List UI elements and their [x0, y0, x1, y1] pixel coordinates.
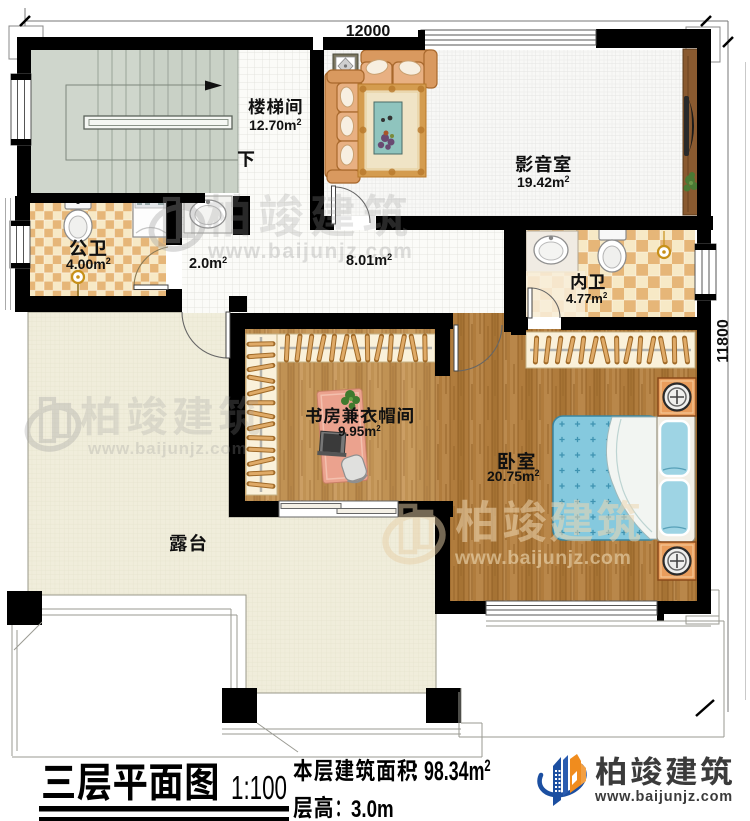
svg-text:4.00m2: 4.00m2 [66, 256, 111, 272]
svg-text:8.01m2: 8.01m2 [346, 252, 392, 269]
svg-text:3.0m: 3.0m [351, 796, 394, 821]
svg-text:12000: 12000 [346, 23, 391, 40]
svg-text:2.0m2: 2.0m2 [189, 255, 227, 272]
svg-text:www.baijunjz.com: www.baijunjz.com [454, 547, 631, 569]
svg-text:12.70m2: 12.70m2 [249, 117, 302, 133]
svg-text:11800: 11800 [715, 319, 732, 363]
svg-text:19.42m2: 19.42m2 [517, 174, 570, 190]
svg-text:20.75m2: 20.75m2 [487, 468, 540, 484]
svg-text:98.34m2: 98.34m2 [424, 755, 491, 786]
svg-text:www.baijunjz.com: www.baijunjz.com [594, 789, 733, 805]
svg-text:9.95m2: 9.95m2 [338, 424, 381, 439]
svg-text:4.77m2: 4.77m2 [566, 291, 608, 306]
svg-text:www.baijunjz.com: www.baijunjz.com [87, 439, 248, 458]
svg-text:1:100: 1:100 [231, 769, 287, 806]
